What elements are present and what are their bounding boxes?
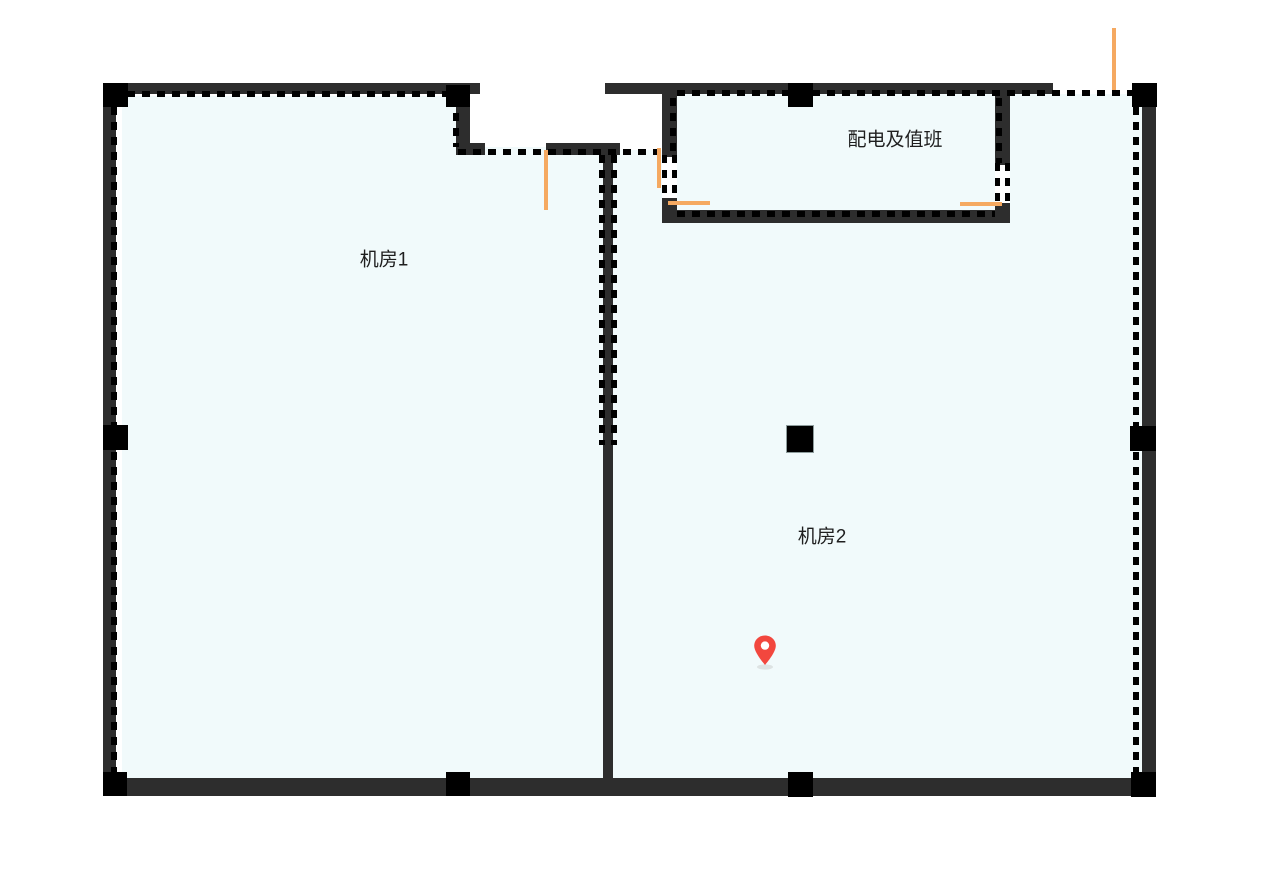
- bottom-wall: [103, 778, 1156, 796]
- room2-top-recess: [613, 93, 662, 150]
- dash-power-room-right-inner: [996, 98, 1002, 163]
- location-pin[interactable]: [752, 634, 778, 670]
- room2-label: 机房2: [798, 528, 847, 547]
- room1-floor: [122, 96, 605, 778]
- dash-partition-left: [599, 155, 605, 445]
- dash-room1-top: [127, 91, 456, 97]
- dash-power-room-bottom: [677, 211, 995, 217]
- floor-plan-canvas: 机房1 机房2 配电及值班: [0, 0, 1269, 869]
- door-power-room-left-outer: [657, 148, 661, 188]
- door-power-room-left-inner: [668, 201, 710, 205]
- dash-room2-top: [677, 90, 1133, 96]
- pillar-top-right: [1132, 83, 1157, 107]
- room1-top-recess: [470, 93, 605, 147]
- pillar-right-middle: [1130, 426, 1156, 451]
- door-entry-corridor: [544, 150, 548, 210]
- room2-floor: [613, 94, 1142, 778]
- pillar-top-left: [103, 83, 128, 107]
- pillar-bottom-left: [103, 772, 127, 796]
- dash-left-door-gap-a: [662, 155, 667, 200]
- door-power-room-right-inner: [960, 202, 1002, 206]
- pillar-top-middle: [788, 83, 813, 107]
- pillar-bottom-middle: [788, 772, 813, 797]
- power-room-label: 配电及值班: [847, 131, 942, 150]
- door-top-right-exit: [1112, 28, 1116, 90]
- pillar-room2-freestanding: [786, 425, 814, 453]
- dash-left-door-gap-b: [672, 155, 677, 200]
- room1-label: 机房1: [360, 251, 409, 270]
- dash-right-door-gap-a: [995, 163, 1000, 205]
- pillar-bottom-recess: [446, 772, 470, 796]
- dash-partition-right: [611, 155, 617, 445]
- pillar-top-recess: [446, 85, 470, 107]
- pillar-left-middle: [103, 425, 128, 450]
- dash-right-door-gap-b: [1005, 163, 1010, 205]
- pillar-bottom-right: [1131, 772, 1156, 797]
- dash-power-room-left-inner: [670, 98, 676, 155]
- dash-entry-opening: [458, 149, 662, 155]
- location-pin-icon: [752, 634, 778, 670]
